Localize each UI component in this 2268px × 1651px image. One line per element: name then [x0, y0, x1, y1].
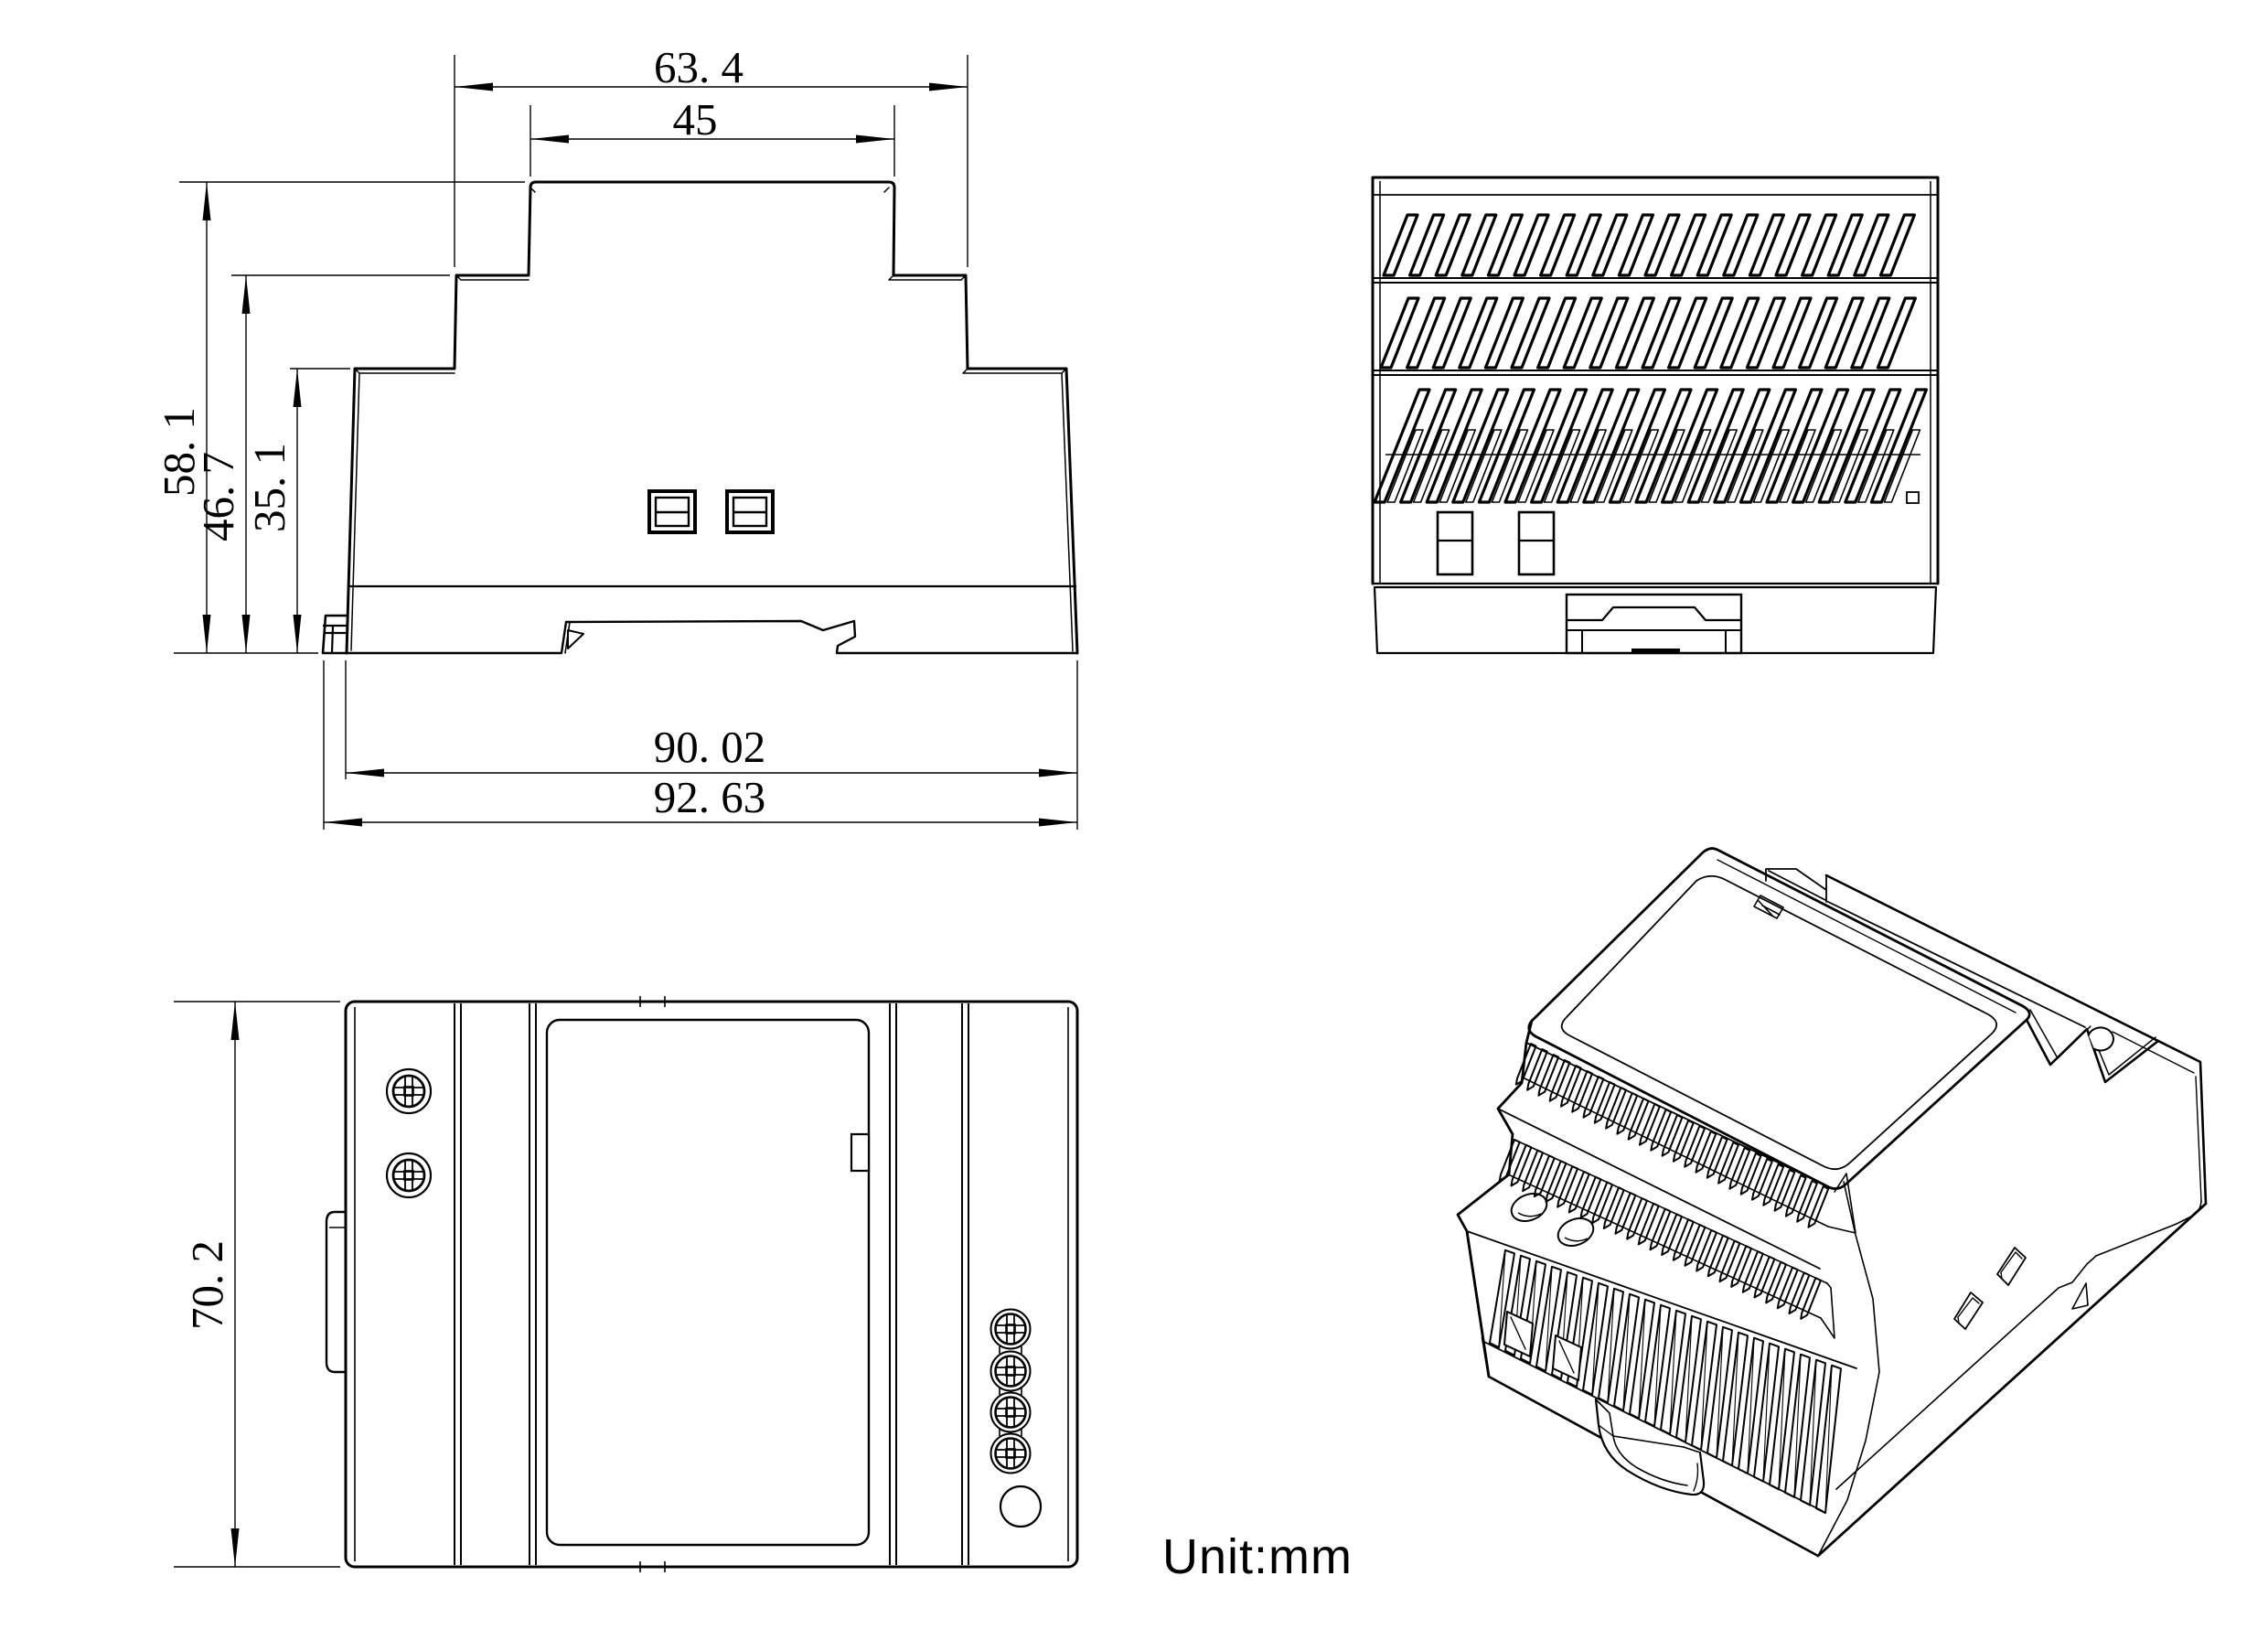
svg-text:46. 7: 46. 7	[193, 452, 243, 541]
svg-text:92. 63: 92. 63	[654, 772, 766, 822]
svg-text:Unit:mm: Unit:mm	[1162, 1529, 1353, 1584]
svg-text:45: 45	[673, 94, 718, 145]
svg-text:70. 2: 70. 2	[182, 1240, 232, 1330]
svg-text:63. 4: 63. 4	[654, 42, 744, 92]
svg-text:90. 02: 90. 02	[654, 722, 766, 772]
svg-text:35. 1: 35. 1	[244, 443, 294, 532]
